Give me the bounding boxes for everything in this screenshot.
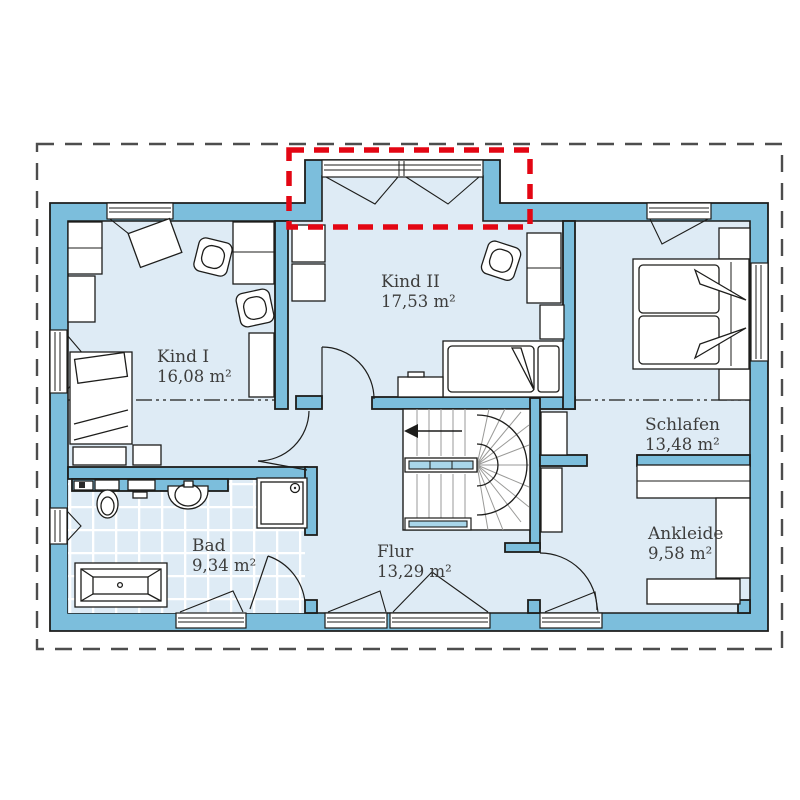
dresser-handle — [408, 372, 424, 377]
room-label-kind2: Kind II — [381, 272, 440, 292]
cabinet — [540, 305, 564, 339]
wall-stub-hall — [296, 396, 322, 409]
bathtub — [75, 563, 167, 607]
wall-kind2-schlafen — [563, 221, 575, 409]
wall-kind1-kind2 — [275, 221, 288, 409]
single-bed — [70, 352, 132, 444]
shower — [257, 478, 307, 528]
room-area-schlafen: 13,48 m² — [645, 435, 720, 454]
window-schlafen-right — [751, 263, 768, 361]
wall-bad-top — [68, 467, 307, 479]
nightstand — [719, 228, 750, 259]
room-label-flur: Flur — [377, 542, 414, 562]
stairwell-edge — [405, 518, 471, 530]
seat-cushion — [235, 288, 275, 328]
wardrobe — [647, 579, 740, 604]
shelf — [133, 492, 147, 498]
wardrobe — [541, 468, 562, 532]
room-area-kind1: 16,08 m² — [157, 367, 232, 386]
room-area-ankleide: 9,58 m² — [648, 544, 712, 563]
shelf — [128, 480, 155, 490]
wardrobe — [233, 222, 274, 284]
wall-schlafen-ankleide-left — [540, 455, 587, 466]
cabinet — [541, 412, 567, 455]
floor-plan-page: Kind I 16,08 m² Kind II 17,53 m² Schlafe… — [0, 0, 800, 800]
room-label-ankleide: Ankleide — [647, 524, 723, 544]
staircase — [403, 409, 530, 530]
wardrobe — [292, 225, 325, 262]
wall-stair-top — [372, 397, 575, 409]
shelf — [249, 333, 274, 397]
side-table — [133, 445, 161, 465]
room-area-kind2: 17,53 m² — [381, 292, 456, 311]
chair — [192, 236, 233, 277]
floor-plan-drawing: Kind I 16,08 m² Kind II 17,53 m² Schlafe… — [0, 0, 800, 800]
room-label-kind1: Kind I — [157, 347, 209, 367]
double-bed — [633, 259, 749, 369]
toilet — [95, 480, 119, 518]
single-bed — [443, 341, 563, 397]
room-area-flur: 13,29 m² — [377, 562, 452, 581]
wall-stair-right — [530, 398, 540, 548]
wall-pier-bad — [305, 600, 317, 613]
dresser — [73, 447, 126, 465]
wall-cap-stair — [505, 543, 540, 552]
wardrobe — [68, 276, 95, 322]
dresser — [398, 377, 443, 397]
room-area-bad: 9,34 m² — [192, 556, 256, 575]
stair-handrail — [405, 458, 477, 472]
wall-pier-ankleide — [528, 600, 540, 613]
room-label-bad: Bad — [192, 536, 226, 556]
wardrobe — [292, 264, 325, 301]
nightstand — [719, 369, 750, 400]
room-label-schlafen: Schlafen — [645, 415, 720, 435]
